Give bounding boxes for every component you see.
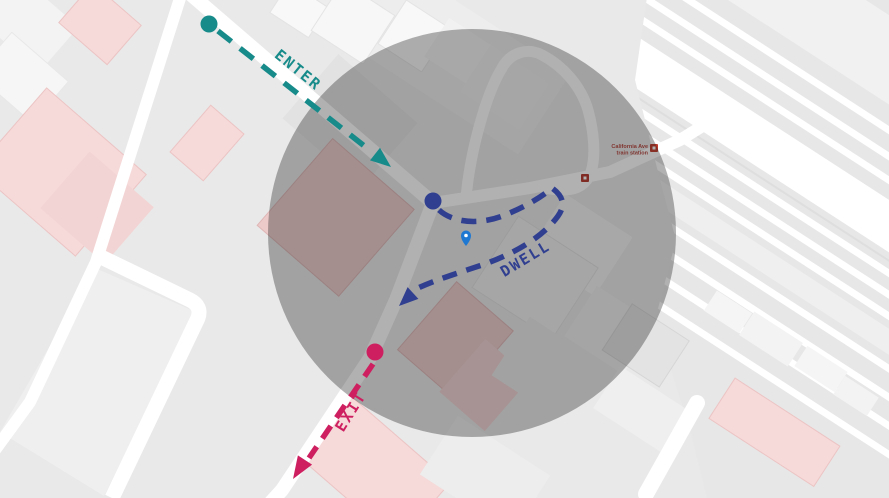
exit-start-dot xyxy=(367,344,384,361)
geofence-circle xyxy=(268,29,676,437)
map-visualization: California Ave train station ENTER DWELL xyxy=(0,0,889,498)
map-canvas[interactable]: California Ave train station ENTER DWELL xyxy=(0,0,889,498)
dwell-start-dot xyxy=(425,193,442,210)
enter-start-dot xyxy=(201,16,218,33)
